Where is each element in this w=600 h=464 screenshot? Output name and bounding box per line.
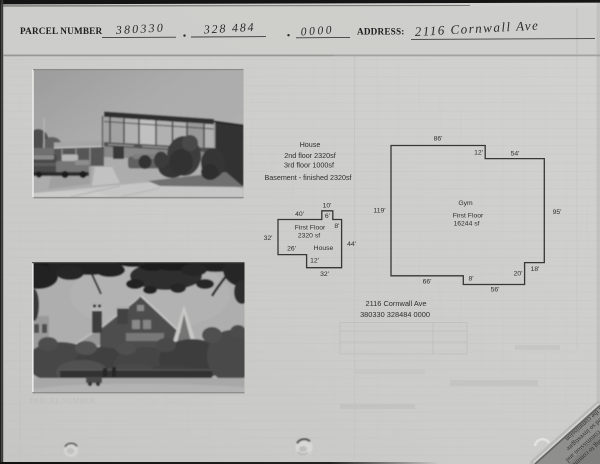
svg-text:18': 18' (531, 266, 540, 273)
svg-text:328 484: 328 484 (202, 20, 255, 37)
svg-text:House: House (314, 245, 334, 252)
svg-text:12': 12' (474, 150, 483, 157)
svg-text:ADDRESS:: ADDRESS: (357, 27, 405, 37)
svg-text:32': 32' (320, 271, 329, 278)
svg-text:380330 - 328484: 380330 - 328484 (135, 396, 186, 405)
svg-text:66': 66' (423, 279, 432, 286)
svg-text:Basement - finished 2320sf: Basement - finished 2320sf (264, 173, 351, 182)
svg-text:54': 54' (511, 151, 520, 158)
svg-text:Gym: Gym (458, 200, 473, 207)
svg-text:26': 26' (287, 246, 296, 253)
svg-text:56': 56' (491, 287, 500, 294)
svg-text:First Floor: First Floor (453, 213, 484, 220)
svg-text:2116 Cornwall Ave: 2116 Cornwall Ave (366, 299, 427, 308)
svg-text:12': 12' (310, 258, 319, 265)
svg-text:20': 20' (514, 271, 523, 278)
svg-text:95': 95' (553, 209, 562, 216)
svg-text:PARCEL NUMBER: PARCEL NUMBER (30, 396, 96, 405)
svg-text:8': 8' (468, 276, 473, 283)
svg-text:PARCEL NUMBER: PARCEL NUMBER (20, 26, 102, 36)
svg-text:380330 328484 0000: 380330 328484 0000 (360, 310, 430, 319)
svg-text:10': 10' (323, 203, 332, 210)
svg-text:40': 40' (295, 211, 304, 218)
svg-text:6': 6' (325, 213, 330, 220)
svg-text:16244 sf: 16244 sf (453, 221, 479, 228)
svg-text:2nd floor 2320sf: 2nd floor 2320sf (284, 151, 336, 160)
svg-text:8': 8' (334, 223, 339, 230)
svg-text:3rd floor 1000sf: 3rd floor 1000sf (284, 161, 334, 170)
svg-text:0000: 0000 (300, 24, 334, 38)
svg-text:2320 sf: 2320 sf (298, 233, 320, 240)
svg-text:32': 32' (264, 235, 273, 242)
svg-text:380330: 380330 (114, 20, 165, 37)
svg-text:First Floor: First Floor (295, 225, 326, 232)
svg-text:86': 86' (434, 136, 443, 143)
svg-text:House: House (300, 140, 321, 149)
svg-text:44': 44' (347, 241, 356, 248)
svg-text:119': 119' (373, 208, 385, 215)
